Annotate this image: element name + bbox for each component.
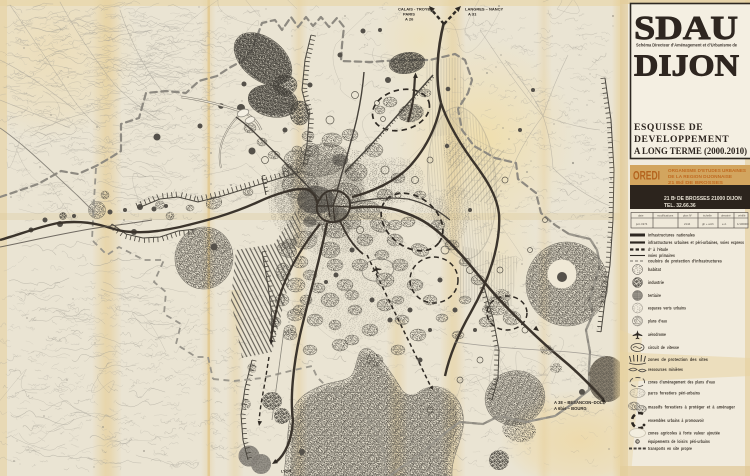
svg-text:date: date [638, 214, 644, 218]
svg-text:zones de protection des sites: zones de protection des sites [648, 357, 708, 362]
svg-text:échelle: échelle [703, 214, 712, 218]
svg-text:juin 1974: juin 1974 [635, 222, 648, 226]
svg-text:DEVELOPPEMENT: DEVELOPPEMENT [634, 134, 729, 145]
svg-text:plan N°: plan N° [683, 214, 692, 218]
svg-text:A 6bis – BOURG: A 6bis – BOURG [554, 406, 587, 411]
svg-text:zones agricoles à forte valeur: zones agricoles à forte valeur ajoutée [648, 431, 720, 436]
svg-text:infrastructures urbaines et pé: infrastructures urbaines et péri-urbaine… [648, 240, 744, 245]
svg-text:circuit de vitesse: circuit de vitesse [648, 345, 679, 350]
svg-text:gh + arch: gh + arch [702, 222, 714, 226]
svg-text:LYON: LYON [281, 470, 291, 474]
svg-text:massifs forestiers à protéger: massifs forestiers à protéger et à aména… [648, 405, 735, 410]
svg-text:ESQUISSE DE: ESQUISSE DE [634, 122, 703, 133]
svg-text:industrie: industrie [648, 280, 664, 285]
svg-text:d° à l’étude: d° à l’étude [648, 247, 668, 252]
svg-text:tertiaire: tertiaire [648, 293, 661, 298]
svg-text:modifications: modifications [657, 214, 674, 218]
svg-text:1/100000: 1/100000 [737, 222, 749, 226]
svg-text:plans d’eau: plans d’eau [648, 319, 667, 324]
svg-text:TEL. 32.66.36: TEL. 32.66.36 [664, 203, 696, 209]
svg-text:e.d.: e.d. [722, 222, 727, 226]
svg-text:A 38 – BESANCON–DOLE: A 38 – BESANCON–DOLE [554, 400, 605, 405]
svg-text:transports en site propre: transports en site propre [648, 446, 692, 451]
svg-text:zones d’aménagement des plans: zones d’aménagement des plans d’eau [648, 380, 715, 385]
svg-text:vérifié: vérifié [738, 214, 746, 218]
svg-text:OREDI: OREDI [633, 171, 660, 183]
svg-text:habitat: habitat [648, 267, 661, 272]
svg-text:infrastructures nationales: infrastructures nationales [648, 233, 695, 238]
svg-text:voies primaires: voies primaires [648, 253, 675, 258]
svg-text:couloirs de protection d’infra: couloirs de protection d’infrastructures [648, 259, 722, 264]
svg-text:équipements de loisirs péri-ur: équipements de loisirs péri-urbains [648, 439, 710, 444]
svg-text:A 26: A 26 [405, 17, 414, 22]
svg-text:2144: 2144 [684, 222, 691, 226]
svg-text:ensembles urbains à promouvoir: ensembles urbains à promouvoir [648, 418, 704, 423]
svg-text:SDAU: SDAU [634, 10, 738, 47]
svg-text:espaces verts urbains: espaces verts urbains [648, 306, 686, 311]
svg-text:aérodrome: aérodrome [648, 332, 666, 337]
svg-text:A LONG TERME (2000.2010): A LONG TERME (2000.2010) [634, 146, 747, 157]
svg-text:dessiné: dessiné [721, 214, 731, 218]
svg-text:parcs forestiers péri-urbains: parcs forestiers péri-urbains [648, 391, 700, 396]
svg-text:DIJON: DIJON [634, 48, 739, 83]
svg-text:ressources minières: ressources minières [648, 367, 683, 372]
svg-text:A 31: A 31 [468, 12, 477, 17]
svg-text:ORGANISME D’ETUDES URBAINES: ORGANISME D’ETUDES URBAINES [668, 168, 746, 173]
svg-text:21 Bᵗ DE BROSSES 21000 DIJON: 21 Bᵗ DE BROSSES 21000 DIJON [664, 196, 742, 202]
svg-text:DE LA REGION DIJONNAISE: DE LA REGION DIJONNAISE [668, 174, 732, 179]
svg-text:21 Bd DE BROSSES: 21 Bd DE BROSSES [668, 180, 723, 185]
